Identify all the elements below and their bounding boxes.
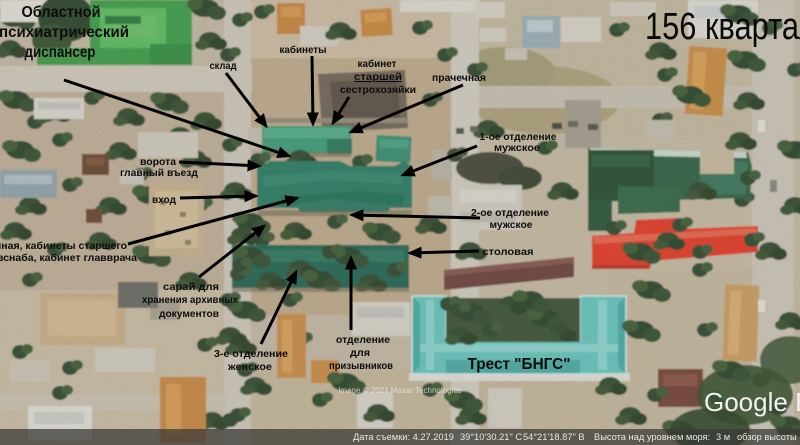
svg-text:кабинеты: кабинеты (280, 44, 327, 56)
svg-text:Областной: Областной (22, 4, 101, 21)
svg-text:мужское: мужское (494, 142, 540, 154)
svg-text:психиатрический: психиатрический (0, 24, 129, 41)
svg-text:Дата съемки: 4.27.2019: Дата съемки: 4.27.2019 (353, 432, 454, 442)
svg-text:Трест "БНГС": Трест "БНГС" (468, 356, 571, 373)
svg-text:54°21'18.87" В: 54°21'18.87" В (523, 432, 585, 442)
svg-text:склад: склад (210, 60, 237, 72)
svg-text:кабинет: кабинет (358, 58, 397, 70)
svg-text:хранения архивных: хранения архивных (142, 294, 238, 306)
svg-text:обзор высоты: обзор высоты (737, 432, 797, 442)
svg-text:мужское: мужское (490, 219, 533, 231)
svg-text:призывников: призывников (329, 360, 393, 372)
svg-text:главный въезд: главный въезд (120, 167, 198, 179)
svg-text:документов: документов (159, 308, 220, 320)
svg-text:156 квартал: 156 квартал (645, 6, 800, 48)
svg-text:39°10'30.21" С: 39°10'30.21" С (460, 432, 522, 442)
svg-text:Высота над уровнем моря:: Высота над уровнем моря: (594, 432, 710, 442)
svg-text:прачечная: прачечная (432, 72, 486, 84)
svg-text:сестрохозяйки: сестрохозяйки (340, 84, 416, 96)
svg-text:сарай для: сарай для (163, 281, 219, 293)
svg-text:старшей: старшей (354, 71, 402, 83)
svg-text:Google E: Google E (704, 387, 800, 417)
svg-text:хозснаба, кабинет главврача: хозснаба, кабинет главврача (0, 252, 137, 264)
svg-text:3-е отделение: 3-е отделение (214, 348, 288, 360)
svg-text:2-ое отделение: 2-ое отделение (471, 207, 549, 219)
svg-text:приемная, кабинеты старшего: приемная, кабинеты старшего (0, 240, 127, 252)
svg-text:3 м: 3 м (716, 432, 730, 442)
svg-text:женское: женское (227, 361, 272, 373)
svg-text:вход: вход (152, 194, 176, 206)
svg-text:для: для (350, 347, 370, 359)
svg-text:диспансер: диспансер (25, 44, 96, 61)
svg-text:столовая: столовая (483, 246, 534, 258)
svg-text:Image © 2021 Maxar Technologie: Image © 2021 Maxar Technologies (338, 386, 462, 395)
svg-text:отделение: отделение (336, 334, 390, 346)
